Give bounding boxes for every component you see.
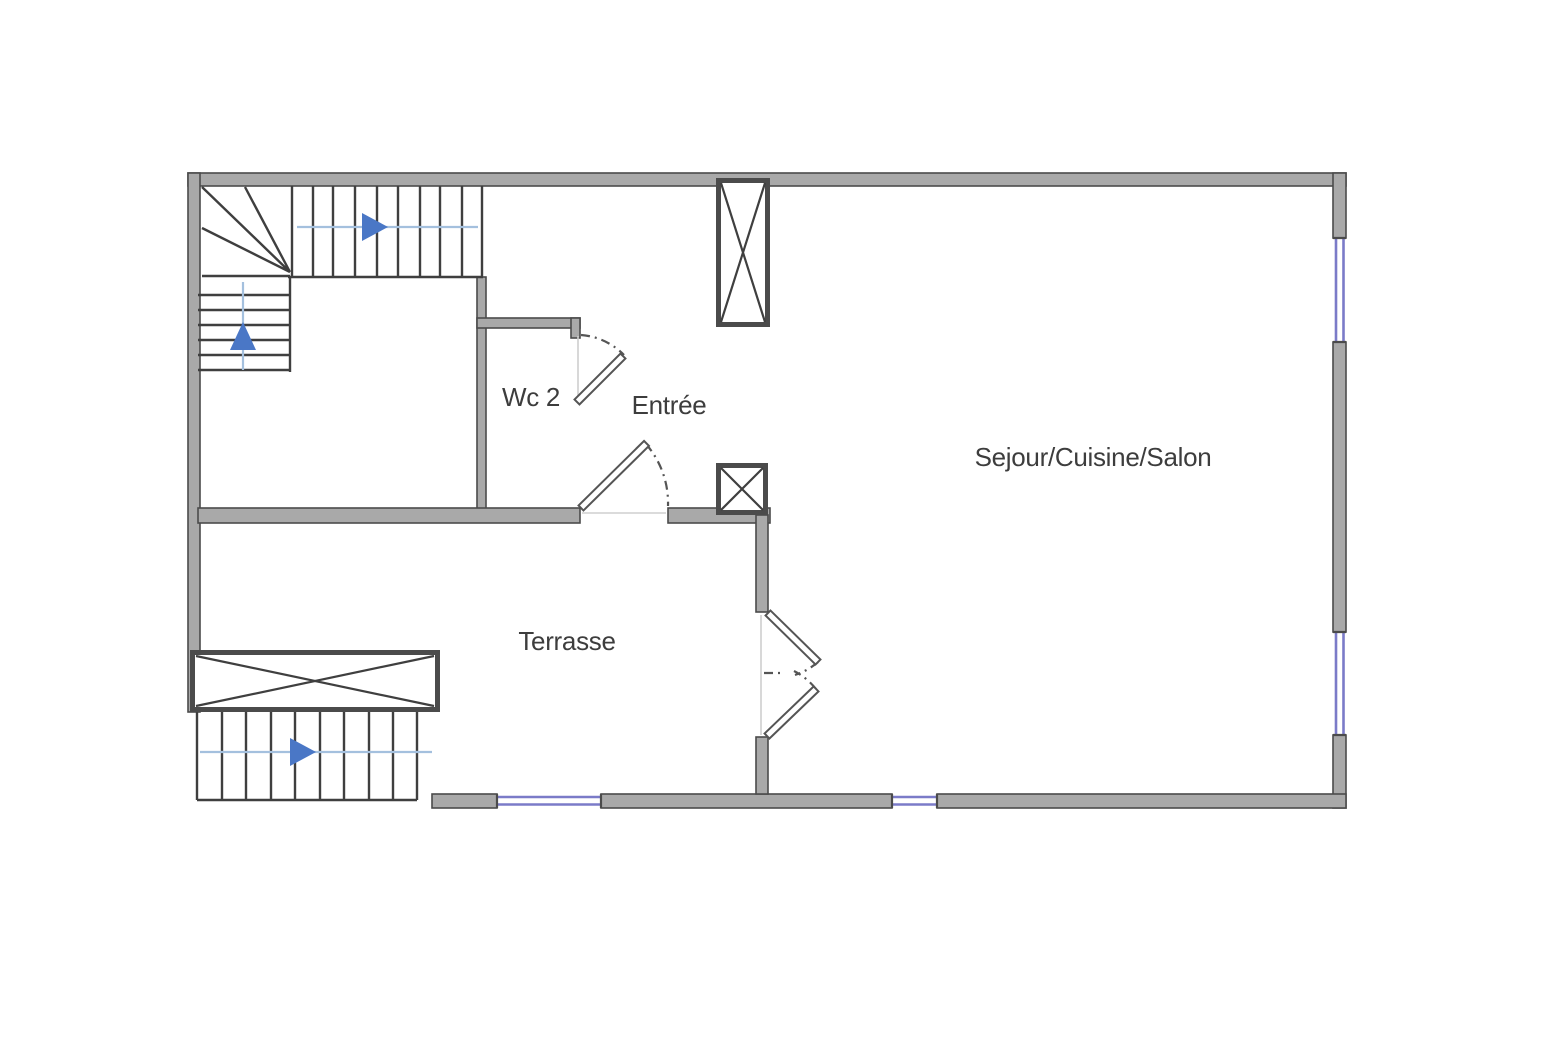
stair-upper-flight	[288, 186, 483, 277]
floor-plan-canvas: Wc 2 Entrée Sejour/Cuisine/Salon Terrass…	[0, 0, 1552, 1040]
stair-direction-arrow-right-icon	[362, 213, 388, 241]
wall-mid-upper	[756, 515, 768, 612]
staircase-exterior	[197, 712, 432, 800]
shaft-box-middle	[719, 466, 766, 513]
stair-winder	[202, 187, 290, 276]
room-label-sejour: Sejour/Cuisine/Salon	[975, 442, 1212, 472]
door-leaf-lower	[765, 686, 819, 738]
door-wc2	[575, 335, 626, 404]
window-bottom-salon	[892, 794, 937, 808]
door-leaf	[575, 354, 626, 405]
window-right-upper	[1333, 238, 1346, 342]
wall-mid-lower	[756, 737, 768, 794]
wall-wc2-top-return	[571, 318, 580, 338]
wall-room-wc2-divider	[477, 277, 486, 513]
wall-hall-bottom	[198, 508, 580, 523]
planter-box	[193, 653, 438, 710]
staircase-main	[198, 186, 483, 372]
wall-right-upper	[1333, 173, 1346, 238]
door-leaf-upper	[766, 610, 821, 664]
wall-bottom-right	[937, 794, 1346, 808]
door-entrance	[579, 441, 669, 513]
door-french-terrace	[761, 610, 820, 738]
wall-right-middle	[1333, 342, 1346, 632]
wall-left	[188, 173, 200, 712]
wall-bottom-middle	[601, 794, 892, 808]
room-label-entree: Entrée	[632, 390, 707, 420]
stair-direction-arrow-right-icon	[290, 738, 316, 766]
wall-wc2-top	[477, 318, 580, 328]
window-right-lower	[1333, 632, 1346, 735]
window-bottom-terrace	[497, 794, 601, 808]
room-label-wc2: Wc 2	[502, 382, 560, 412]
room-label-terrasse: Terrasse	[518, 626, 615, 656]
stair-lower-flight	[198, 277, 290, 372]
door-leaf	[579, 441, 649, 511]
floor-plan: Wc 2 Entrée Sejour/Cuisine/Salon Terrass…	[0, 0, 1552, 1040]
wall-bottom-left	[432, 794, 497, 808]
shaft-box-top	[719, 181, 768, 325]
